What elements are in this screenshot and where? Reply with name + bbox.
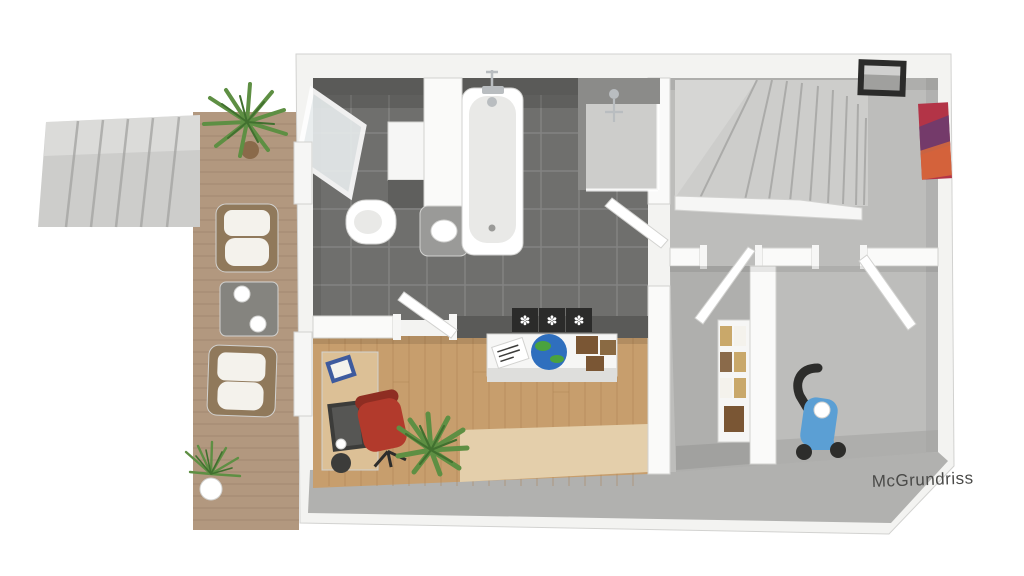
wood-box	[600, 340, 616, 355]
flower-print-icon: ✽	[520, 314, 531, 329]
flower-prints: ✽ ✽ ✽	[512, 308, 592, 332]
monitor-screen	[332, 405, 363, 448]
wood-box	[586, 356, 604, 371]
room-door1-frame-right	[755, 245, 762, 269]
shelf-book	[720, 326, 732, 346]
partition-wall	[424, 78, 462, 208]
desk-mouse	[336, 439, 346, 449]
globe-continent	[550, 355, 564, 363]
exterior-staircase	[38, 115, 200, 227]
wall-bath-hall-lower	[648, 286, 670, 474]
bike-pedal-left	[796, 444, 812, 460]
room-wall-shadow	[670, 266, 938, 272]
table-plate	[234, 286, 250, 302]
vanity	[420, 206, 468, 256]
shower-back-wall	[578, 78, 660, 104]
office-door-frame-left	[393, 314, 401, 340]
floorplan-page: ✽ ✽ ✽ Mc	[0, 0, 1024, 576]
wall-bath-office-left	[313, 316, 393, 338]
table-plate	[250, 316, 266, 332]
toilet-seat	[354, 210, 382, 234]
armchair-1	[216, 204, 278, 272]
shelf-book	[734, 352, 746, 372]
bathtub-mixer	[487, 97, 497, 107]
toilet-cistern	[388, 180, 426, 208]
bike-pedal-right	[830, 442, 846, 458]
bathroom-partition	[424, 78, 462, 208]
armchair-back-cushion	[217, 352, 266, 382]
window-left-2	[294, 332, 312, 416]
sideboard	[487, 334, 617, 382]
shelf-box	[724, 406, 744, 432]
armchair-seat-cushion	[217, 381, 264, 411]
flower-print-icon: ✽	[574, 314, 585, 329]
armchair-seat-cushion	[225, 238, 269, 266]
wash-basin	[431, 220, 457, 242]
armchair-2	[207, 345, 277, 417]
globe-sphere	[531, 334, 567, 370]
coffee-table	[220, 282, 278, 336]
room-door1-frame-left	[700, 245, 707, 269]
photo-sky	[864, 65, 900, 75]
globe	[531, 334, 567, 370]
shower	[578, 78, 660, 190]
bathtub	[462, 70, 523, 255]
shelf-book	[734, 378, 746, 398]
room-door2-frame-left	[812, 245, 819, 269]
desk-speaker	[331, 453, 351, 473]
armchair-back-cushion	[224, 210, 270, 236]
shelf-book	[720, 378, 732, 398]
office-rug	[460, 424, 648, 482]
shelf-book	[734, 326, 746, 346]
window-left-1	[294, 142, 312, 204]
wood-box	[576, 336, 598, 354]
shower-tray	[586, 104, 658, 190]
wall-hall-room-seg3	[867, 248, 938, 266]
wall-hall-room-seg2	[762, 248, 812, 266]
wall-closet-divider	[750, 266, 776, 464]
watermark: McGrundriss	[871, 468, 973, 491]
closet-shelf	[718, 320, 750, 442]
bathtub-drain	[489, 225, 496, 232]
shower-side-wall	[578, 78, 586, 190]
framed-photo	[857, 59, 906, 97]
shelf-book	[720, 352, 732, 372]
bike-seat	[814, 402, 830, 418]
wall-art	[918, 102, 952, 179]
shower-head	[609, 89, 619, 99]
toilet-shelf	[388, 122, 426, 180]
bathtub-faucet	[482, 86, 504, 94]
bathtub-basin	[469, 96, 516, 243]
staircase	[675, 80, 868, 220]
globe-continent	[535, 341, 551, 351]
plant-pot-white	[200, 478, 222, 500]
wall-hall-room-seg1	[670, 248, 700, 266]
flower-print-icon: ✽	[547, 314, 558, 329]
floorplan-3d-render: ✽ ✽ ✽ Mc	[0, 0, 1024, 576]
toilet-shelf-cabinet	[388, 122, 426, 180]
